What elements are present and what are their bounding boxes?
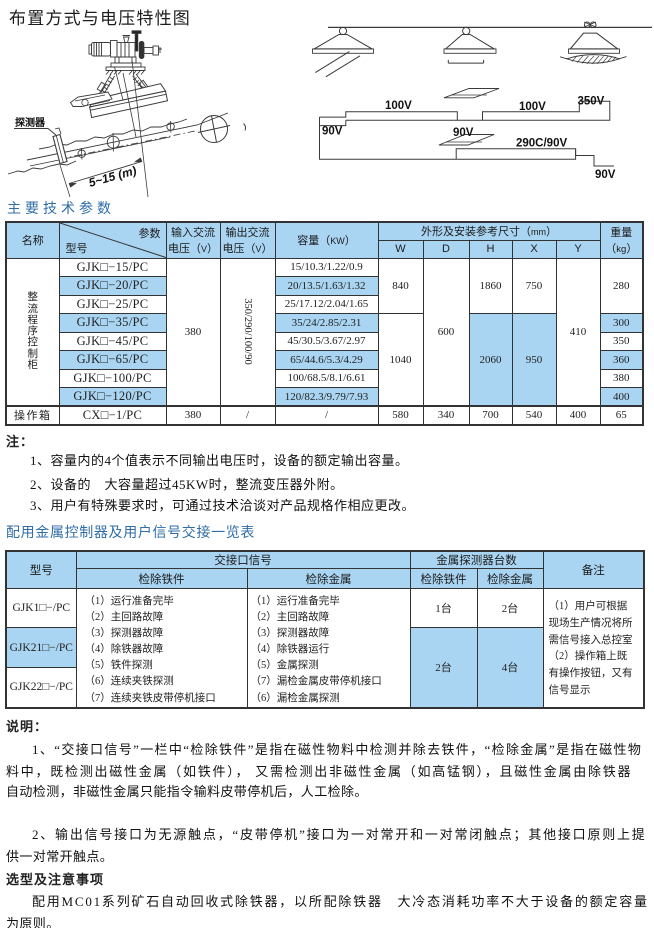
svg-text:100V: 100V — [385, 100, 412, 112]
svg-text:350V: 350V — [578, 96, 605, 108]
svg-text:90V: 90V — [322, 126, 343, 138]
svg-text:探测器: 探测器 — [15, 116, 46, 129]
svg-text:90V: 90V — [453, 127, 474, 139]
svg-text:100V: 100V — [519, 101, 546, 113]
svg-text:5~15 (m): 5~15 (m) — [87, 163, 138, 190]
svg-text:290C/90V: 290C/90V — [516, 138, 567, 150]
svg-text:90V: 90V — [595, 169, 616, 181]
